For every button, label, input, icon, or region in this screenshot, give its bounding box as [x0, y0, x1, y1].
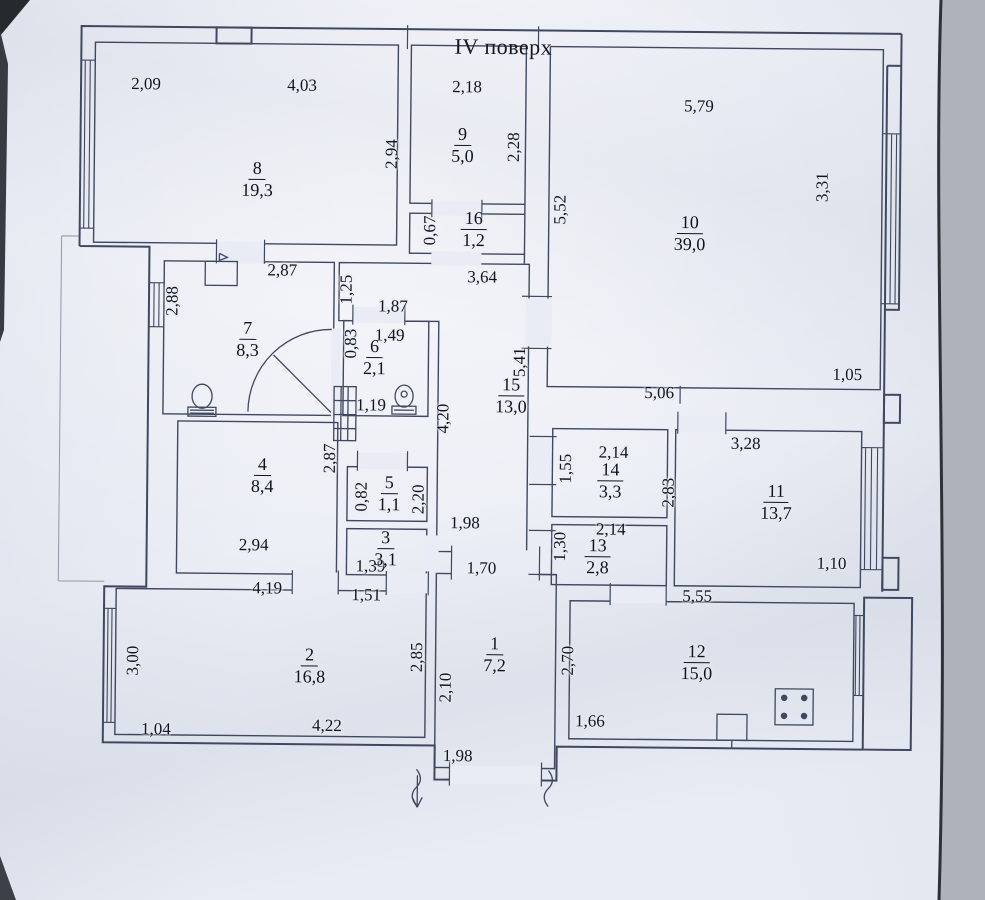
- room-area: 7,2: [483, 655, 506, 676]
- dimension-label: 2,94: [239, 536, 269, 553]
- room-label: 143,3: [597, 460, 623, 502]
- room-label: 78,3: [236, 319, 259, 361]
- room-number: 13: [585, 536, 611, 557]
- room-number: 15: [498, 375, 524, 396]
- room-number: 10: [677, 213, 703, 234]
- dimension-label: 3,64: [467, 268, 497, 285]
- room-number: 12: [684, 642, 710, 663]
- dimension-label: 1,51: [351, 586, 381, 603]
- room-number: 6: [366, 337, 383, 358]
- room-number: 11: [763, 482, 789, 503]
- room-number: 16: [461, 209, 487, 230]
- dimension-label: 0,82: [352, 482, 369, 512]
- dimension-label: 2,18: [452, 78, 482, 95]
- room-area: 8,3: [236, 340, 259, 361]
- room-label: 48,4: [251, 455, 274, 497]
- dimension-label: 1,98: [450, 514, 480, 531]
- room-number: 9: [454, 125, 471, 146]
- room-number: 5: [381, 473, 398, 494]
- dimension-label: 2,94: [383, 139, 400, 169]
- dimension-label: 2,83: [660, 478, 677, 508]
- dimension-label: 5,06: [644, 384, 674, 401]
- dimension-label: 5,55: [682, 587, 712, 604]
- dimension-label: 3,00: [124, 646, 141, 676]
- dimension-label: 1,98: [443, 747, 473, 764]
- dimension-label: 5,79: [684, 97, 714, 114]
- scanned-floor-plan-photo: IV поверх 2,094,032,185,792,871,871,493,…: [0, 0, 985, 900]
- plan-tilt-wrapper: IV поверх 2,094,032,185,792,871,871,493,…: [0, 0, 985, 900]
- room-number: 8: [249, 159, 266, 180]
- dimension-label: 4,03: [287, 77, 317, 94]
- room-area: 19,3: [241, 180, 273, 201]
- room-area: 3,3: [599, 481, 622, 502]
- dimension-label: 3,28: [731, 435, 761, 452]
- dimension-label: 1,30: [551, 532, 568, 562]
- room-area: 8,4: [251, 476, 274, 497]
- dimension-label: 2,87: [321, 443, 338, 473]
- dimension-label: 2,10: [437, 673, 454, 703]
- dimension-label: 3,31: [813, 172, 830, 202]
- dimension-label: 1,10: [817, 555, 847, 572]
- dimension-label: 2,14: [599, 444, 629, 461]
- dimension-label: 2,20: [409, 484, 426, 514]
- room-number: 14: [597, 460, 623, 481]
- dimension-label: 4,19: [252, 579, 282, 596]
- room-label: 819,3: [241, 159, 273, 201]
- dimension-label: 1,66: [575, 712, 605, 729]
- labels-layer: 2,094,032,185,792,871,871,493,641,195,06…: [0, 0, 985, 900]
- room-label: 132,8: [584, 536, 610, 578]
- room-area: 15,0: [681, 663, 713, 684]
- room-area: 13,0: [495, 396, 527, 417]
- room-area: 39,0: [674, 234, 706, 255]
- room-area: 1,1: [378, 494, 401, 515]
- room-label: 1215,0: [681, 642, 713, 684]
- dimension-label: 2,28: [505, 132, 522, 162]
- room-number: 2: [301, 645, 318, 666]
- room-label: 161,2: [460, 209, 486, 251]
- dimension-label: 0,83: [342, 329, 359, 359]
- dimension-label: 5,41: [511, 347, 528, 377]
- dimension-label: 5,52: [551, 195, 568, 225]
- room-number: 4: [254, 455, 271, 476]
- room-area: 2,8: [586, 557, 609, 578]
- dimension-label: 4,22: [312, 717, 342, 734]
- dimension-label: 2,88: [163, 286, 180, 316]
- room-label: 62,1: [363, 337, 386, 379]
- room-label: 1513,0: [495, 375, 527, 417]
- dimension-label: 1,55: [557, 454, 574, 484]
- dimension-label: 1,04: [141, 720, 171, 737]
- room-number: 3: [377, 528, 394, 549]
- room-label: 1113,7: [760, 482, 792, 524]
- dimension-label: 2,85: [408, 642, 425, 672]
- room-label: 33,1: [374, 528, 397, 570]
- room-number: 1: [486, 634, 503, 655]
- dimension-label: 2,87: [267, 261, 297, 278]
- dimension-label: 2,70: [559, 646, 576, 676]
- room-area: 13,7: [760, 503, 792, 524]
- room-area: 2,1: [363, 358, 386, 379]
- room-area: 16,8: [294, 666, 326, 687]
- room-label: 95,0: [451, 125, 474, 167]
- dimension-label: 0,67: [421, 215, 438, 245]
- room-label: 51,1: [378, 473, 401, 515]
- room-number: 7: [239, 319, 256, 340]
- dimension-label: 1,25: [337, 275, 354, 305]
- dimension-label: 1,70: [466, 559, 496, 576]
- room-area: 5,0: [451, 146, 474, 167]
- dimension-label: 1,87: [378, 297, 408, 314]
- room-label: 216,8: [294, 645, 326, 687]
- room-label: 1039,0: [674, 213, 706, 255]
- room-area: 3,1: [374, 549, 397, 570]
- dimension-label: 1,19: [356, 396, 386, 413]
- dimension-label: 4,20: [434, 404, 451, 434]
- dimension-label: 1,05: [832, 366, 862, 383]
- dimension-label: 2,09: [131, 75, 161, 92]
- room-label: 17,2: [483, 634, 506, 676]
- room-area: 1,2: [462, 230, 485, 251]
